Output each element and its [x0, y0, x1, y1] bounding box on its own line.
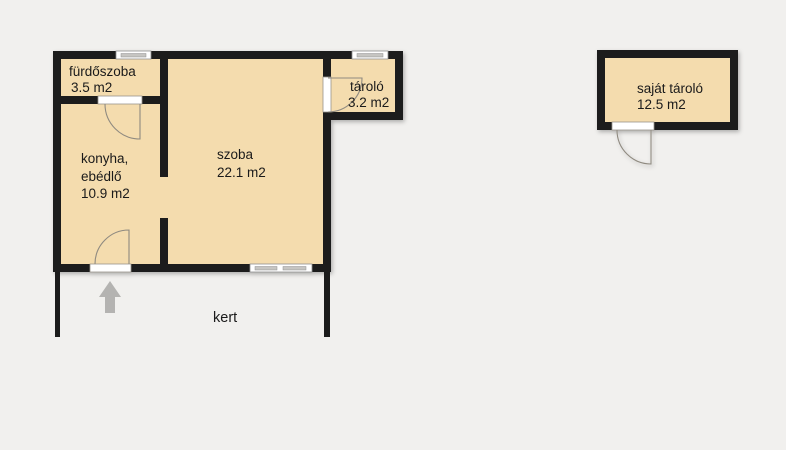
storage-door-opening — [323, 77, 331, 112]
entrance-door-opening — [90, 264, 131, 272]
garden-boundary — [55, 272, 330, 337]
bathroom-door-opening — [98, 96, 142, 104]
own-storage-door-opening — [612, 122, 654, 130]
living-room-area-label: 22.1 m2 — [217, 165, 266, 180]
wall-top — [53, 51, 403, 59]
kitchen-area-label: 10.9 m2 — [81, 186, 130, 201]
floorplan-canvas: fürdőszoba 3.5 m2 konyha, ebédlő 10.9 m2… — [0, 0, 786, 450]
wall-own-top — [597, 50, 738, 58]
room-window — [250, 264, 312, 272]
bathroom-window — [116, 51, 151, 59]
wall-left — [53, 51, 61, 272]
entrance-arrow-icon — [99, 281, 121, 313]
garden-line-right — [324, 272, 330, 337]
wall-storage-bottom — [323, 112, 403, 120]
own-storage-door-swing — [617, 130, 651, 164]
wall-own-left — [597, 50, 605, 130]
garden-line-left — [55, 272, 60, 337]
kitchen-name-label-1: konyha, — [81, 151, 128, 166]
wall-own-right — [730, 50, 738, 130]
living-room-name-label: szoba — [217, 147, 254, 162]
wall-storage-right — [395, 51, 403, 120]
garden-label: kert — [213, 310, 237, 326]
own-storage-area-label: 12.5 m2 — [637, 97, 686, 112]
wall-divider-lower — [160, 218, 168, 272]
bathroom-area-label: 3.5 m2 — [71, 80, 112, 95]
own-storage-name-label: saját tároló — [637, 81, 703, 96]
kitchen-name-label-2: ebédlő — [81, 169, 122, 184]
storage-name-label: tároló — [350, 79, 384, 94]
wall-divider-upper — [160, 51, 168, 177]
bathroom-name-label: fürdőszoba — [69, 64, 136, 79]
storage-area-label: 3.2 m2 — [348, 95, 389, 110]
floorplan-svg: fürdőszoba 3.5 m2 konyha, ebédlő 10.9 m2… — [0, 0, 786, 450]
storage-window — [352, 51, 388, 59]
